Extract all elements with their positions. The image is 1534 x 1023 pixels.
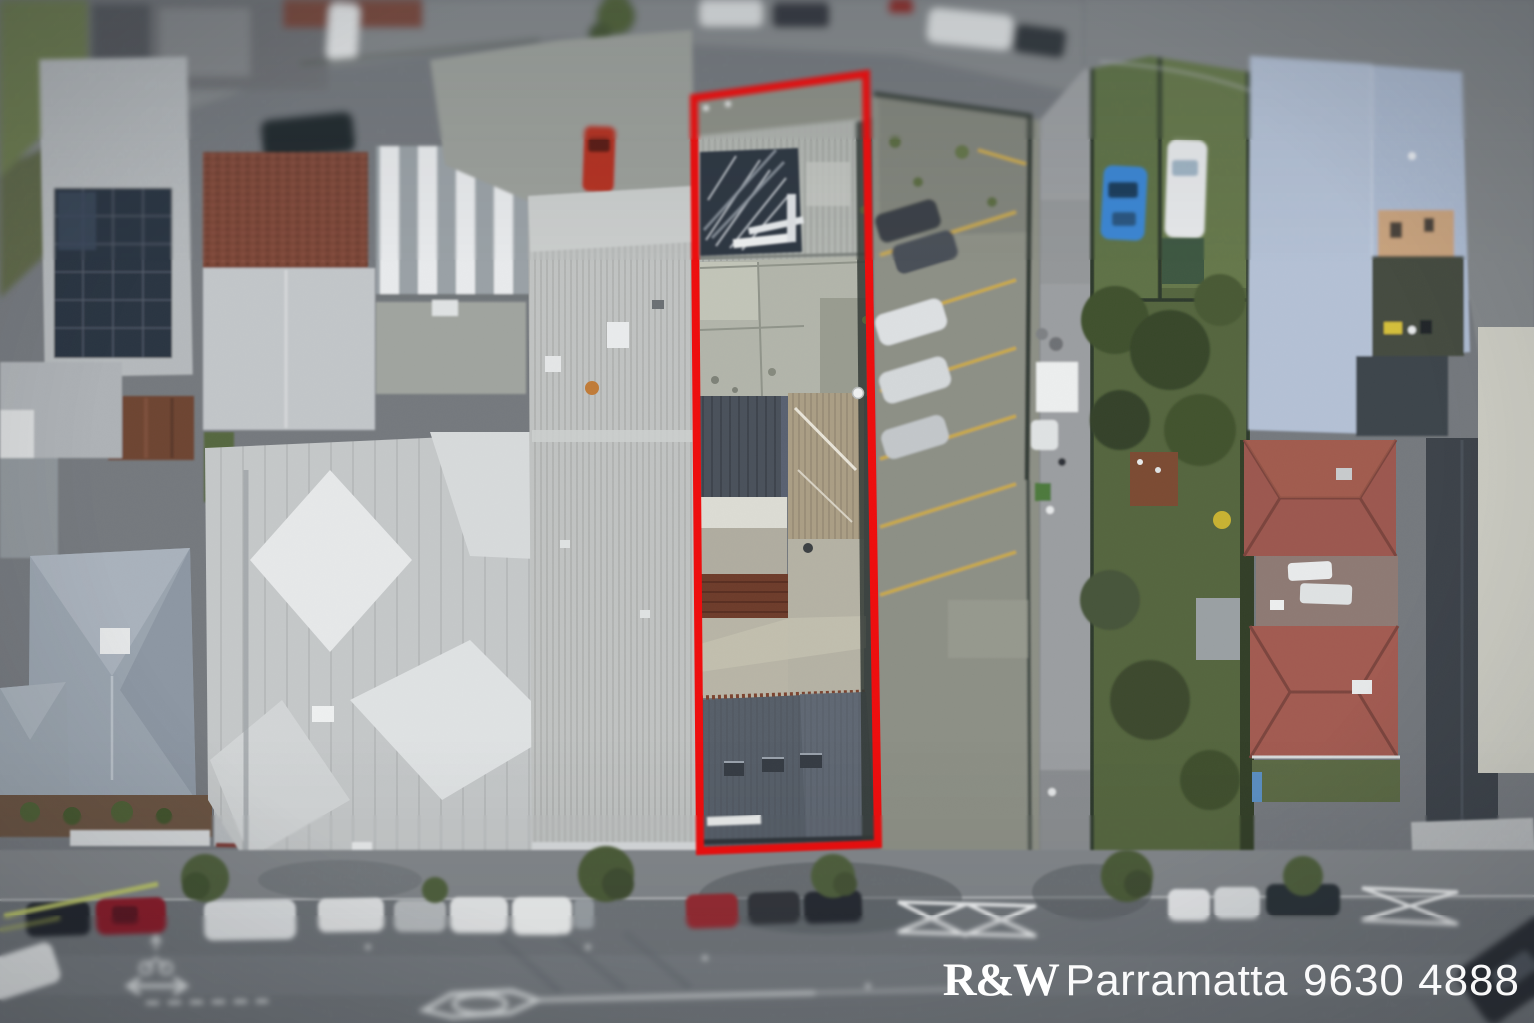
agency-watermark: R&W Parramatta 9630 4888: [943, 953, 1520, 1007]
aerial-photo-scene: [0, 0, 1534, 1023]
watermark-office-name: Parramatta: [1065, 956, 1288, 1006]
watermark-brand-logo: R&W: [943, 953, 1059, 1007]
aerial-photo-canvas: R&W Parramatta 9630 4888: [0, 0, 1534, 1023]
film-grain-overlay: [0, 0, 1534, 1023]
watermark-phone-number: 9630 4888: [1303, 956, 1520, 1006]
